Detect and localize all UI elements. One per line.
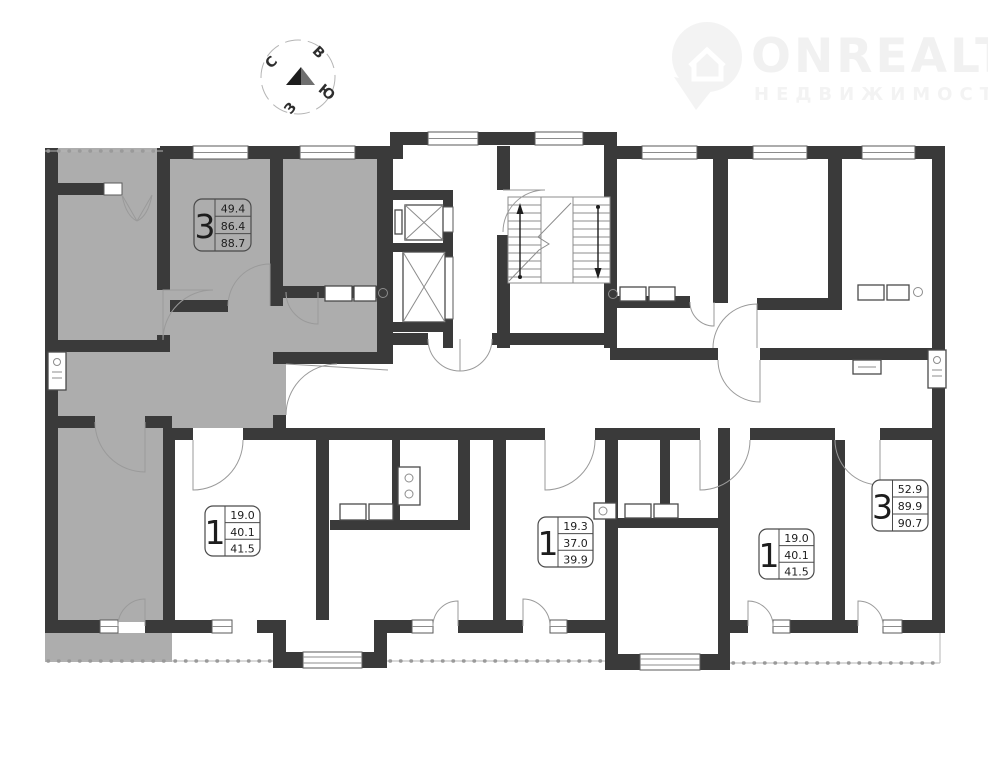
apartment-label-3-room-right[interactable]: 3 52.9 89.9 90.7 bbox=[872, 480, 928, 531]
bathroom-b-fixtures bbox=[594, 503, 678, 519]
svg-text:19.0: 19.0 bbox=[784, 532, 809, 545]
staircase bbox=[508, 197, 610, 283]
svg-text:41.5: 41.5 bbox=[784, 566, 809, 579]
svg-text:49.4: 49.4 bbox=[221, 203, 246, 216]
svg-text:1: 1 bbox=[205, 513, 226, 552]
vent-marker-left bbox=[48, 352, 66, 390]
washer-corridor bbox=[853, 360, 881, 374]
logo-brand-text: ONREALT bbox=[751, 29, 988, 84]
onrealt-pin-icon bbox=[672, 22, 742, 110]
apartment-label-1-room-left[interactable]: 1 19.0 40.1 41.5 bbox=[205, 506, 261, 556]
svg-text:37.0: 37.0 bbox=[563, 537, 588, 550]
svg-text:3: 3 bbox=[872, 488, 893, 527]
compass-rose: С В З Ю bbox=[261, 40, 338, 118]
onrealt-logo: ONREALT НЕДВИЖИМОСТЬ bbox=[672, 22, 988, 110]
apartment-label-1-room-right[interactable]: 1 19.0 40.1 41.5 bbox=[759, 529, 815, 579]
svg-text:52.9: 52.9 bbox=[898, 483, 923, 496]
compass-needle-dark bbox=[286, 67, 301, 85]
kitchen-counter-right-apartment bbox=[858, 285, 923, 300]
svg-text:39.9: 39.9 bbox=[563, 554, 588, 567]
compass-east: В bbox=[309, 43, 328, 62]
stair-landing bbox=[541, 197, 573, 283]
vent-marker-right bbox=[928, 350, 946, 388]
svg-text:19.3: 19.3 bbox=[563, 520, 588, 533]
svg-text:1: 1 bbox=[538, 524, 559, 563]
elevator-door-marker bbox=[395, 210, 402, 234]
svg-text:40.1: 40.1 bbox=[230, 526, 255, 539]
bathroom-a-fixtures bbox=[340, 467, 420, 520]
floor-plan-page: ONREALT НЕДВИЖИМОСТЬ С В З Ю bbox=[0, 0, 988, 775]
elevator-shaft-small bbox=[405, 205, 443, 240]
apartment-label-1-room-middle[interactable]: 1 19.3 37.0 39.9 bbox=[538, 517, 594, 567]
compass-north: С bbox=[262, 53, 281, 72]
svg-text:86.4: 86.4 bbox=[221, 220, 246, 233]
svg-text:41.5: 41.5 bbox=[230, 543, 255, 556]
svg-text:1: 1 bbox=[759, 536, 780, 575]
svg-text:3: 3 bbox=[195, 207, 216, 246]
logo-subtitle-text: НЕДВИЖИМОСТЬ bbox=[754, 84, 988, 105]
compass-needle-light bbox=[301, 67, 315, 85]
svg-text:40.1: 40.1 bbox=[784, 549, 809, 562]
svg-text:88.7: 88.7 bbox=[221, 237, 246, 250]
elevators bbox=[403, 205, 445, 322]
elevator-shaft-large bbox=[403, 252, 445, 322]
apartment-highlight[interactable] bbox=[45, 148, 390, 662]
compass-west: З bbox=[281, 100, 300, 118]
svg-text:89.9: 89.9 bbox=[898, 500, 923, 513]
svg-text:90.7: 90.7 bbox=[898, 517, 923, 530]
svg-text:19.0: 19.0 bbox=[230, 509, 255, 522]
apartment-label-3-room-highlighted[interactable]: 3 49.4 86.4 88.7 bbox=[194, 199, 251, 251]
